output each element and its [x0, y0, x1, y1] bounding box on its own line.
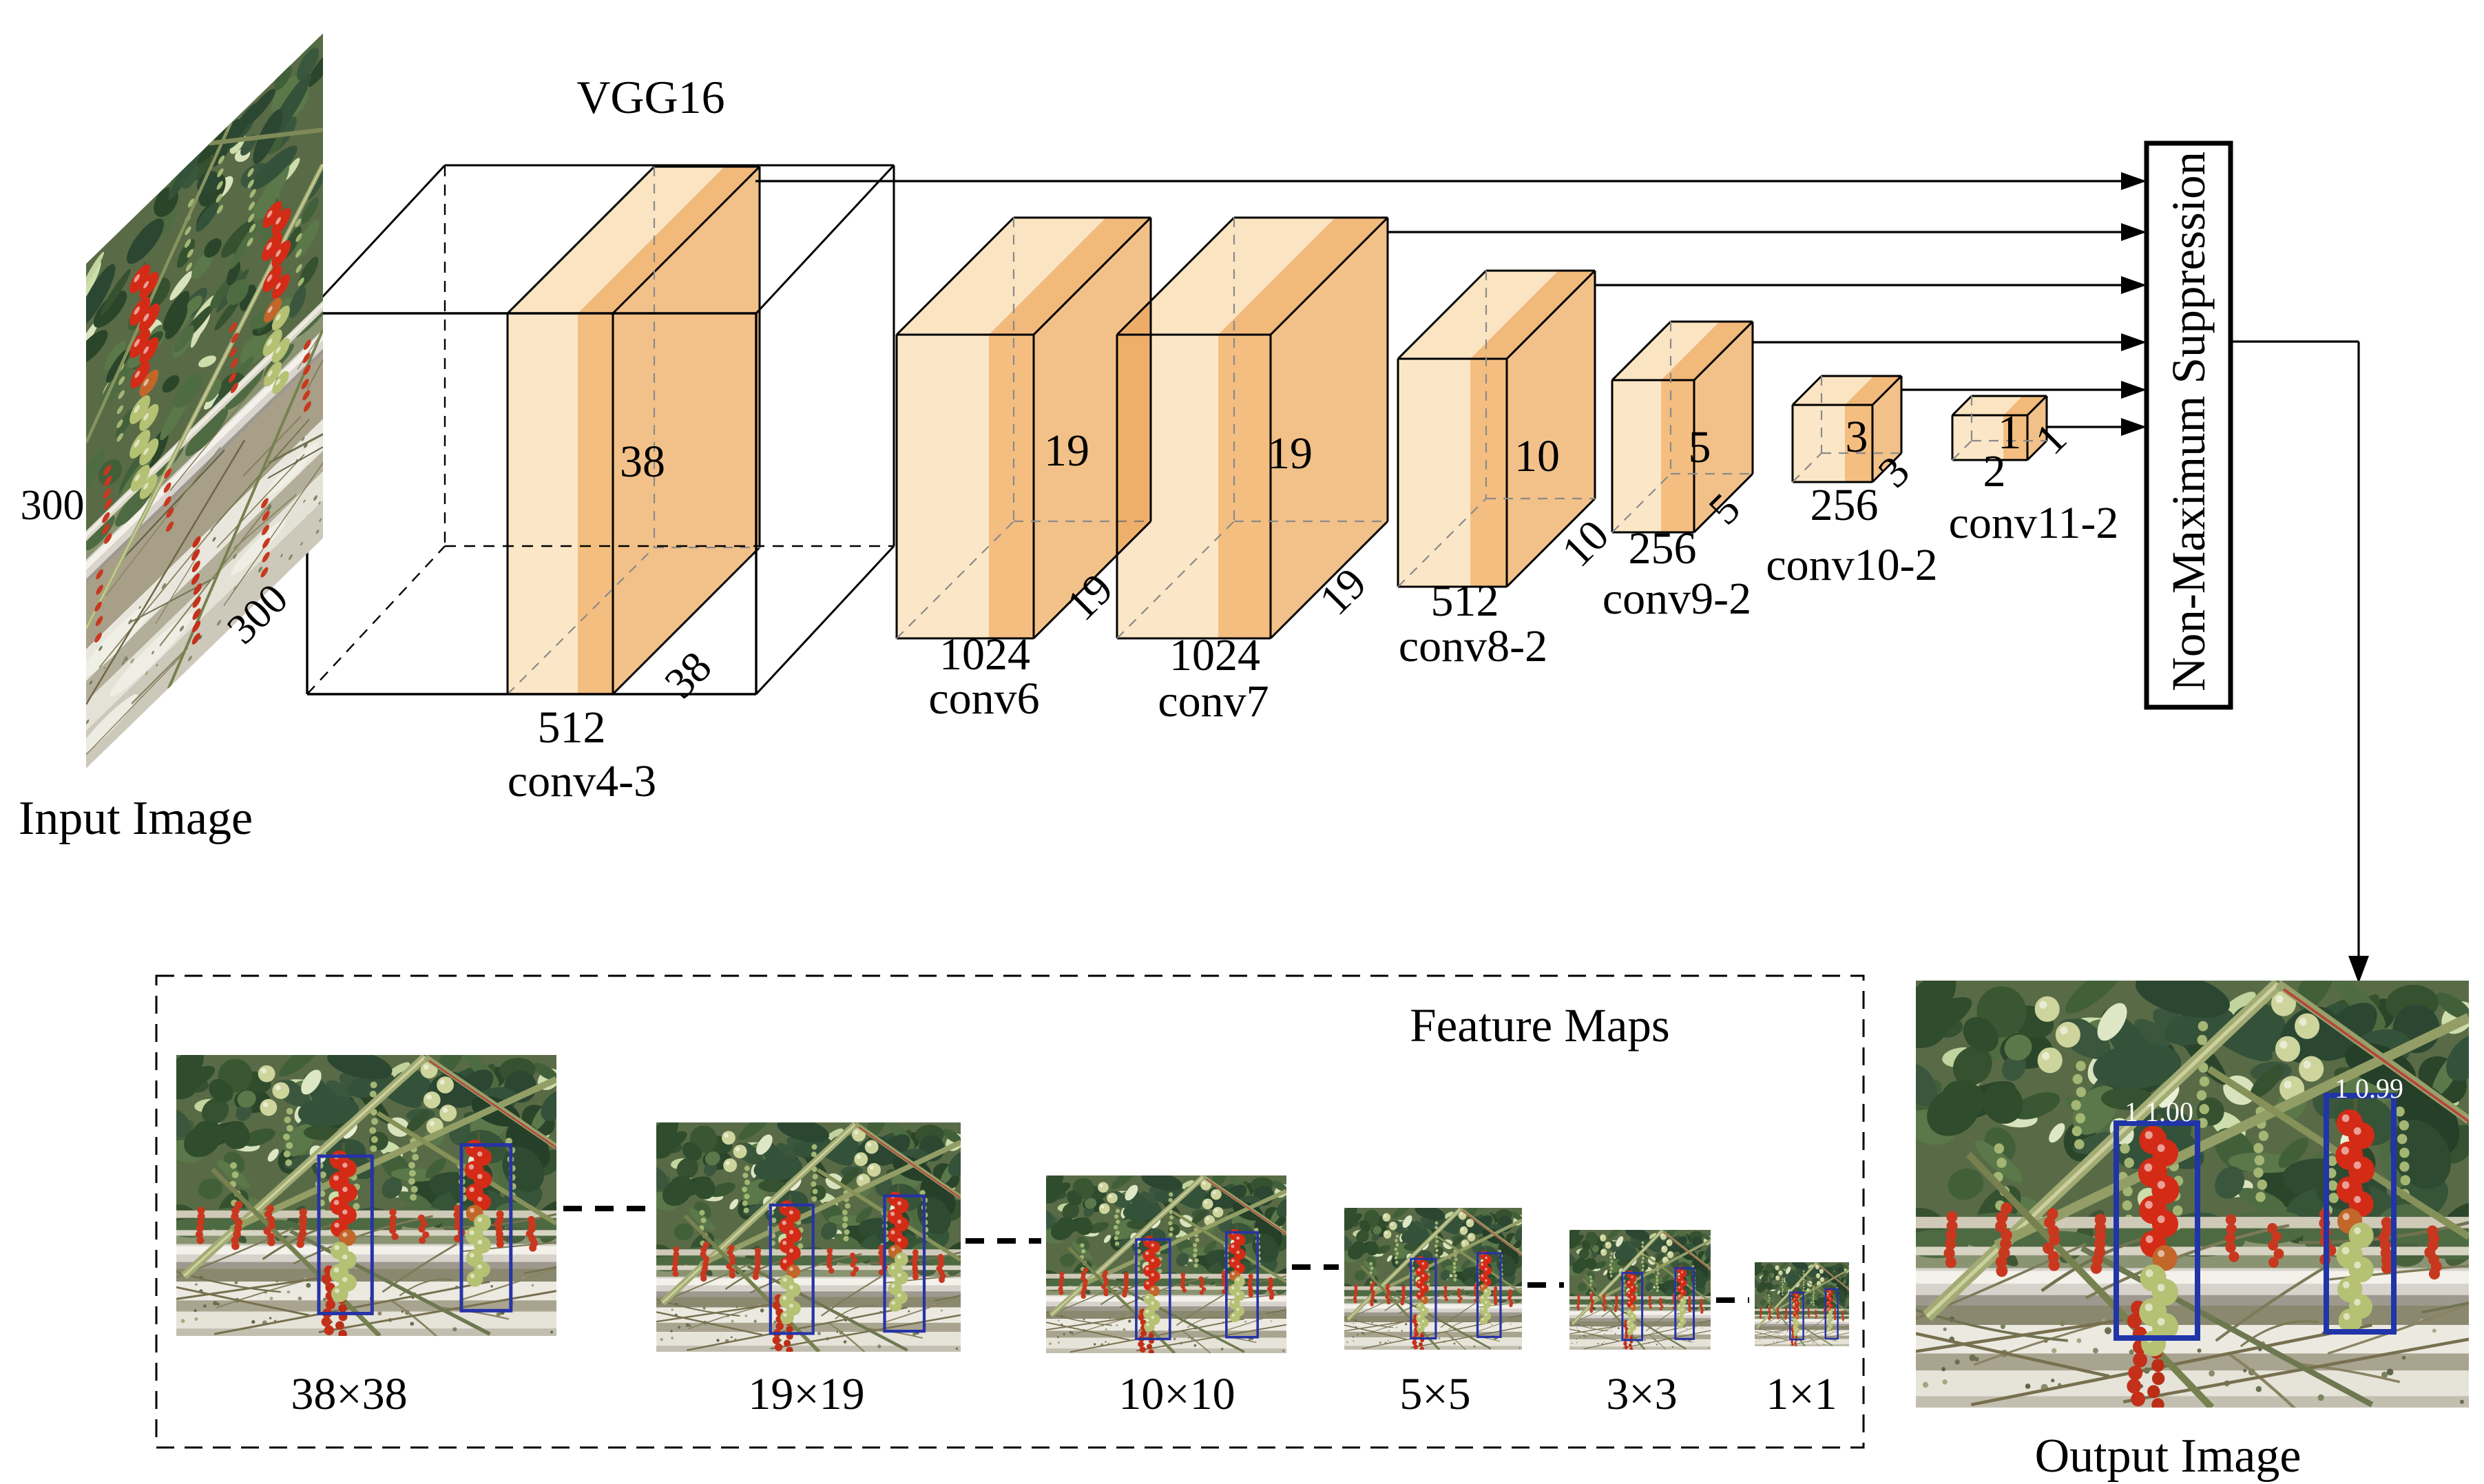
svg-text:conv11-2: conv11-2 — [1949, 498, 2119, 548]
svg-text:conv6: conv6 — [928, 673, 1039, 724]
svg-text:10: 10 — [1514, 431, 1560, 481]
svg-text:19×19: 19×19 — [748, 1369, 864, 1419]
svg-text:19: 19 — [1044, 426, 1089, 476]
svg-text:512: 512 — [538, 702, 606, 753]
svg-text:3×3: 3×3 — [1606, 1369, 1677, 1419]
svg-text:5×5: 5×5 — [1399, 1369, 1470, 1419]
svg-text:38: 38 — [620, 437, 665, 487]
svg-text:1×1: 1×1 — [1766, 1369, 1837, 1419]
svg-text:512: 512 — [1431, 576, 1499, 626]
svg-text:conv9-2: conv9-2 — [1603, 574, 1751, 624]
svg-text:conv10-2: conv10-2 — [1766, 540, 1937, 590]
svg-text:3: 3 — [1846, 412, 1868, 462]
svg-text:1024: 1024 — [939, 629, 1030, 680]
svg-text:1 1.00: 1 1.00 — [2125, 1096, 2193, 1127]
svg-text:Input Image: Input Image — [19, 792, 253, 845]
svg-text:Output Image: Output Image — [2035, 1430, 2302, 1483]
svg-text:1 0.99: 1 0.99 — [2335, 1073, 2403, 1104]
svg-text:38×38: 38×38 — [291, 1369, 407, 1419]
svg-text:19: 19 — [1267, 428, 1313, 479]
svg-text:256: 256 — [1629, 523, 1697, 574]
svg-text:5: 5 — [1689, 422, 1711, 472]
svg-text:Feature Maps: Feature Maps — [1410, 999, 1669, 1052]
svg-text:VGG16: VGG16 — [576, 71, 724, 123]
svg-text:256: 256 — [1810, 480, 1879, 530]
svg-text:300: 300 — [21, 482, 85, 529]
svg-text:conv8-2: conv8-2 — [1399, 621, 1547, 671]
svg-text:conv7: conv7 — [1158, 676, 1269, 727]
svg-text:1024: 1024 — [1169, 630, 1260, 680]
svg-text:2: 2 — [1983, 446, 2006, 497]
svg-text:Non-Maximum Suppression: Non-Maximum Suppression — [2162, 151, 2215, 691]
svg-text:conv4-3: conv4-3 — [508, 756, 656, 806]
svg-text:10×10: 10×10 — [1118, 1369, 1235, 1419]
